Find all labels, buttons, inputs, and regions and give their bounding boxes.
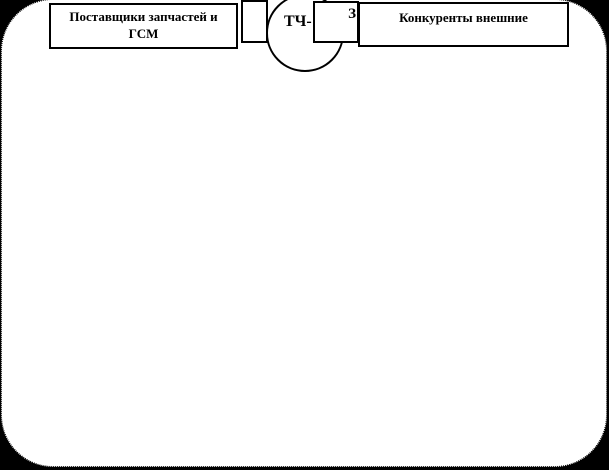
- center-circle-label: ТЧ-: [284, 14, 312, 30]
- suppliers-box-label: Поставщики запчастей и ГСМ: [58, 8, 230, 42]
- connector-box-node: [241, 0, 268, 43]
- diagram-canvas: ТЧ- З Поставщики запчастей и ГСМ Конкуре…: [0, 0, 609, 470]
- z-box-node: З: [313, 1, 359, 43]
- competitors-box-node: Конкуренты внешние: [358, 2, 569, 47]
- z-box-label: З: [348, 6, 356, 22]
- competitors-box-label: Конкуренты внешние: [399, 10, 528, 26]
- suppliers-box-node: Поставщики запчастей и ГСМ: [49, 3, 238, 49]
